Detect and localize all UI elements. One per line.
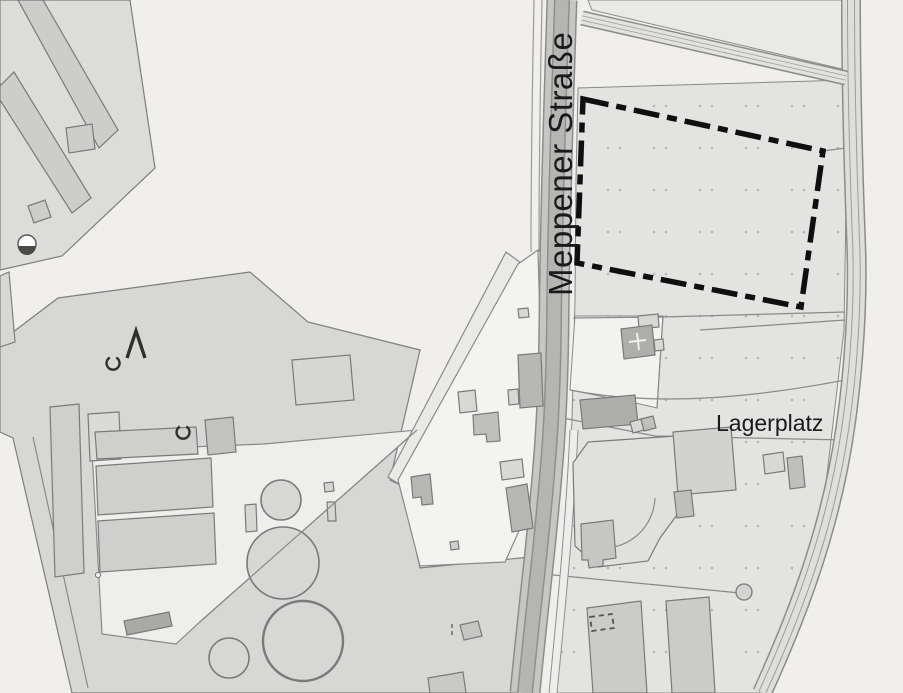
building-footprint (66, 124, 95, 153)
small-structure (450, 541, 459, 550)
building-footprint (458, 390, 477, 413)
building-footprint (50, 404, 84, 577)
building-footprint (518, 353, 543, 408)
building-footprint (674, 490, 694, 518)
tank-circle (263, 601, 343, 681)
tank-circle (261, 480, 301, 520)
building-footprint (292, 355, 354, 405)
building-footprint (98, 513, 216, 572)
building-footprint (500, 459, 524, 480)
building-footprint (580, 395, 638, 429)
building-footprint (666, 597, 715, 693)
building-footprint (763, 452, 785, 474)
building-footprint (587, 601, 647, 693)
building-footprint (654, 339, 664, 351)
street-name-label: Meppener Straße (542, 32, 579, 296)
building-footprint (205, 417, 236, 455)
small-structure (641, 416, 656, 431)
site-map-canvas: Meppener Straße Lagerplatz (0, 0, 903, 693)
tank-circle (247, 527, 319, 599)
building-footprint (787, 456, 805, 489)
small-structure (518, 308, 529, 318)
building-footprint (460, 621, 482, 640)
site-map-page: Meppener Straße Lagerplatz (0, 0, 903, 693)
building-footprint (673, 427, 736, 495)
building-footprint (96, 458, 213, 515)
small-round-structure (736, 584, 752, 600)
node-dot (95, 572, 100, 577)
survey-marker-icon (18, 235, 36, 255)
building-footprint (95, 427, 198, 459)
small-structure (245, 504, 257, 532)
small-structure (324, 482, 334, 492)
building-footprint (508, 389, 519, 405)
area-name-label: Lagerplatz (716, 410, 823, 436)
tank-circle (209, 638, 249, 678)
